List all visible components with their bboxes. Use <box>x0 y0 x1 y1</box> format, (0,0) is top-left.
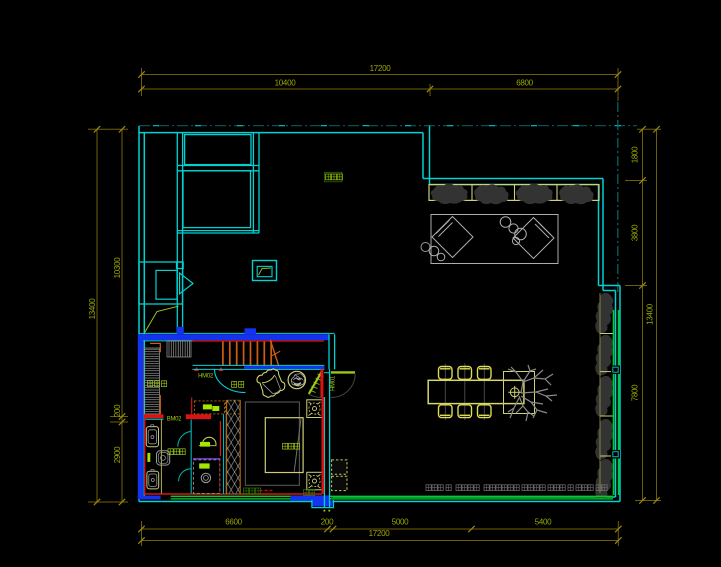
svg-text:6600: 6600 <box>225 518 242 527</box>
svg-text:2900: 2900 <box>113 446 122 463</box>
svg-text:7800: 7800 <box>631 384 640 401</box>
svg-text:17200: 17200 <box>370 64 392 73</box>
svg-text:5400: 5400 <box>535 518 552 527</box>
svg-text:13400: 13400 <box>646 303 655 325</box>
svg-text:6800: 6800 <box>516 79 533 88</box>
svg-text:5000: 5000 <box>392 518 409 527</box>
svg-text:3800: 3800 <box>631 224 640 241</box>
svg-text:HM01: HM01 <box>331 375 337 391</box>
svg-text:200: 200 <box>321 518 334 527</box>
svg-text:17200: 17200 <box>369 529 391 538</box>
svg-text:HM02: HM02 <box>198 374 214 380</box>
svg-text:1800: 1800 <box>631 146 640 163</box>
svg-text:BM02: BM02 <box>167 416 182 422</box>
svg-text:10300: 10300 <box>113 257 122 279</box>
svg-text:13400: 13400 <box>88 298 97 320</box>
svg-text:200: 200 <box>113 404 122 417</box>
svg-text:10400: 10400 <box>275 79 297 88</box>
